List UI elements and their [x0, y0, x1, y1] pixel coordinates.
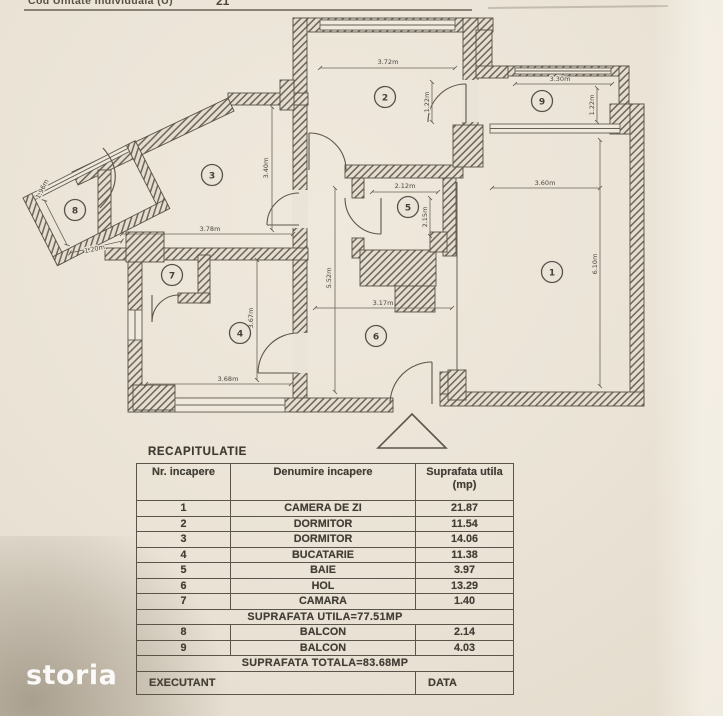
svg-text:5: 5: [405, 203, 411, 213]
subtotal-text: SUPRAFATA UTILA=77.51MP: [137, 609, 514, 625]
header-row: Nr. incapere Denumire incapere Suprafata…: [137, 464, 514, 501]
cell-area: 13.29: [416, 578, 514, 594]
cell-name: BALCON: [231, 625, 416, 641]
cell-nr: 8: [137, 625, 231, 641]
dim-label: 3.78m: [200, 225, 221, 233]
cell-area: 14.06: [416, 532, 514, 548]
svg-text:1: 1: [549, 268, 555, 278]
cell-nr: 6: [137, 578, 231, 594]
table-row: 1 CAMERA DE ZI 21.87: [137, 501, 514, 517]
door-camara: [152, 295, 179, 322]
executant-cell: EXECUTANT: [137, 671, 416, 694]
cell-name: CAMARA: [231, 594, 416, 610]
door-baie: [345, 198, 381, 234]
cell-name: BAIE: [231, 563, 416, 579]
svg-text:6: 6: [373, 332, 379, 342]
room-label-3: 3: [202, 165, 223, 186]
subtotal-row: SUPRAFATA UTILA=77.51MP: [137, 609, 514, 625]
cell-name: CAMERA DE ZI: [231, 501, 416, 517]
rows-main: 1 CAMERA DE ZI 21.87 2 DORMITOR 11.54 3 …: [137, 501, 514, 610]
dim-label: 3.60m: [535, 179, 556, 187]
cell-area: 11.38: [416, 547, 514, 563]
dim-label: 5.52m: [325, 268, 333, 289]
cell-nr: 2: [137, 516, 231, 532]
floor-plan: 3.72m1.22m3.30m1.22m3.60m6.10m2.12m2.15m…: [0, 0, 723, 456]
rows-balcony: 8 BALCON 2.14 9 BALCON 4.03: [137, 625, 514, 656]
cell-area: 1.40: [416, 594, 514, 610]
cell-name: BUCATARIE: [231, 547, 416, 563]
recap-table: Nr. incapere Denumire incapere Suprafata…: [136, 463, 514, 695]
dimension-lines: [70, 68, 612, 392]
dim-label: 3.68m: [218, 375, 239, 383]
col-header-nr: Nr. incapere: [137, 464, 231, 501]
total-text: SUPRAFATA TOTALA=83.68MP: [137, 656, 514, 672]
table-row: 7 CAMARA 1.40: [137, 594, 514, 610]
col-header-area: Suprafata utila (mp): [416, 464, 514, 501]
dim-label: 3.17m: [373, 299, 394, 307]
cell-area: 21.87: [416, 501, 514, 517]
cell-name: DORMITOR: [231, 532, 416, 548]
room-label-4: 4: [230, 323, 251, 344]
table-row: 3 DORMITOR 14.06: [137, 532, 514, 548]
footer-row: EXECUTANT DATA: [137, 671, 514, 694]
room-label-8: 8: [65, 200, 86, 221]
dim-label: 1.22m: [588, 95, 596, 116]
door-entrance: [390, 362, 432, 404]
room-label-6: 6: [366, 326, 387, 347]
room-label-5: 5: [398, 197, 419, 218]
cell-area: 3.97: [416, 563, 514, 579]
door-room1: [428, 84, 466, 122]
svg-text:8: 8: [72, 206, 78, 216]
svg-text:2: 2: [382, 93, 388, 103]
table-row: 6 HOL 13.29: [137, 578, 514, 594]
table-row: 5 BAIE 3.97: [137, 563, 514, 579]
svg-text:9: 9: [539, 97, 545, 107]
room-label-2: 2: [375, 87, 396, 108]
dim-label: 3.72m: [378, 58, 399, 66]
cell-nr: 4: [137, 547, 231, 563]
cell-area: 4.03: [416, 640, 514, 656]
dim-label: 3.40m: [262, 158, 270, 179]
dim-label: 2.12m: [395, 182, 416, 190]
total-row: SUPRAFATA TOTALA=83.68MP: [137, 656, 514, 672]
svg-text:3: 3: [209, 171, 215, 181]
storia-watermark-logo: storia: [26, 660, 117, 691]
recap-title: RECAPITULATIE: [148, 446, 247, 458]
table-row: 2 DORMITOR 11.54: [137, 516, 514, 532]
svg-text:4: 4: [237, 329, 243, 339]
dim-label: 1.22m: [423, 92, 431, 113]
door-room2: [309, 133, 346, 170]
dim-label: 2.15m: [421, 207, 429, 228]
dim-label: 3.30m: [550, 75, 571, 83]
cell-nr: 9: [137, 640, 231, 656]
dimension-labels: 3.72m1.22m3.30m1.22m3.60m6.10m2.12m2.15m…: [34, 58, 599, 383]
table-row: 8 BALCON 2.14: [137, 625, 514, 641]
cell-name: DORMITOR: [231, 516, 416, 532]
cell-nr: 5: [137, 563, 231, 579]
room-label-1: 1: [542, 262, 563, 283]
dim-label: 6.10m: [591, 254, 599, 275]
col-header-name: Denumire incapere: [231, 464, 416, 501]
cell-nr: 3: [137, 532, 231, 548]
cell-name: BALCON: [231, 640, 416, 656]
col-header-area-line1: Suprafata utila: [416, 466, 513, 479]
dim-label: 3.67m: [247, 308, 255, 329]
data-cell: DATA: [416, 671, 514, 694]
room-label-7: 7: [162, 265, 183, 286]
svg-text:7: 7: [169, 271, 175, 281]
entrance-arrow: [378, 414, 446, 448]
cell-nr: 1: [137, 501, 231, 517]
cell-name: HOL: [231, 578, 416, 594]
col-header-area-line2: (mp): [416, 479, 513, 492]
cell-area: 2.14: [416, 625, 514, 641]
scanned-floorplan-page: { "page": { "header_note": "Cod Unitate …: [0, 0, 723, 716]
windows: [128, 20, 620, 412]
cell-area: 11.54: [416, 516, 514, 532]
table-row: 9 BALCON 4.03: [137, 640, 514, 656]
cell-nr: 7: [137, 594, 231, 610]
table-row: 4 BUCATARIE 11.38: [137, 547, 514, 563]
room-label-9: 9: [532, 91, 553, 112]
